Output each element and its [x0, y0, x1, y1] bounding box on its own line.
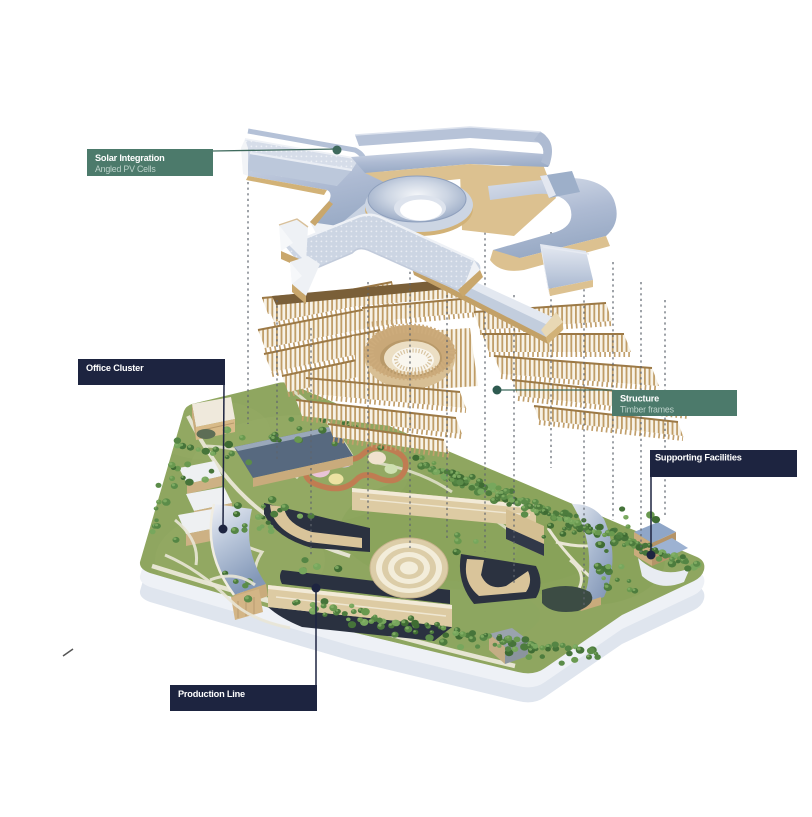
svg-text:Structure: Structure: [620, 394, 659, 404]
svg-text:Production Line: Production Line: [178, 689, 245, 699]
svg-text:Angled PV Cells: Angled PV Cells: [95, 164, 156, 174]
svg-text:Supporting Facilities: Supporting Facilities: [655, 453, 742, 463]
svg-text:Office Cluster: Office Cluster: [86, 363, 144, 373]
svg-text:Timber frames: Timber frames: [620, 405, 675, 415]
svg-text:Solar Integration: Solar Integration: [95, 153, 165, 163]
